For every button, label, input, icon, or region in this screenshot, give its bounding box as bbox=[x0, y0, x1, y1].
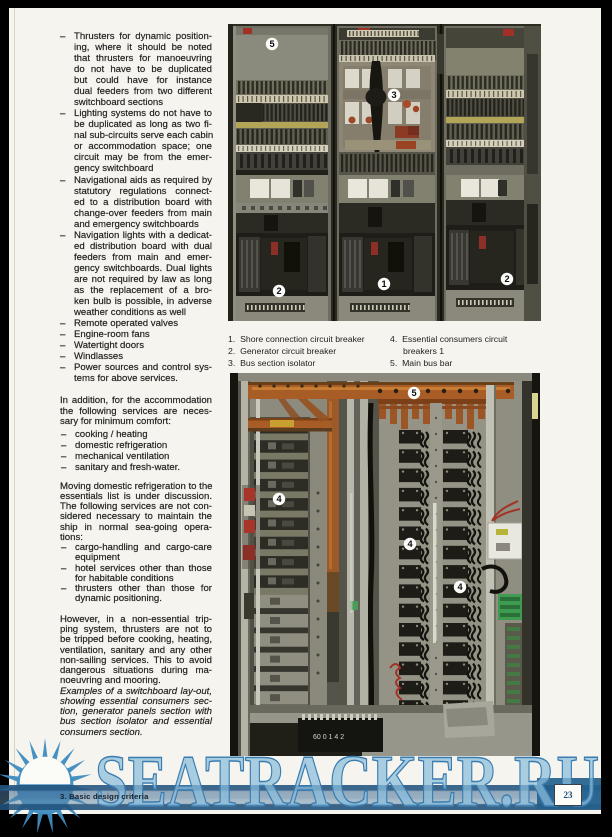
svg-text:5: 5 bbox=[269, 39, 274, 49]
svg-text:5: 5 bbox=[411, 388, 416, 398]
svg-text:4: 4 bbox=[276, 494, 282, 504]
svg-text:4: 4 bbox=[407, 539, 413, 549]
svg-text:3: 3 bbox=[391, 90, 396, 100]
svg-text:60 0 1 4 2: 60 0 1 4 2 bbox=[313, 734, 344, 741]
svg-text:2: 2 bbox=[504, 274, 509, 284]
svg-text:1: 1 bbox=[381, 279, 386, 289]
svg-text:SEATRACKER.RU: SEATRACKER.RU bbox=[95, 742, 599, 812]
svg-text:2: 2 bbox=[276, 286, 281, 296]
svg-text:4: 4 bbox=[457, 582, 463, 592]
